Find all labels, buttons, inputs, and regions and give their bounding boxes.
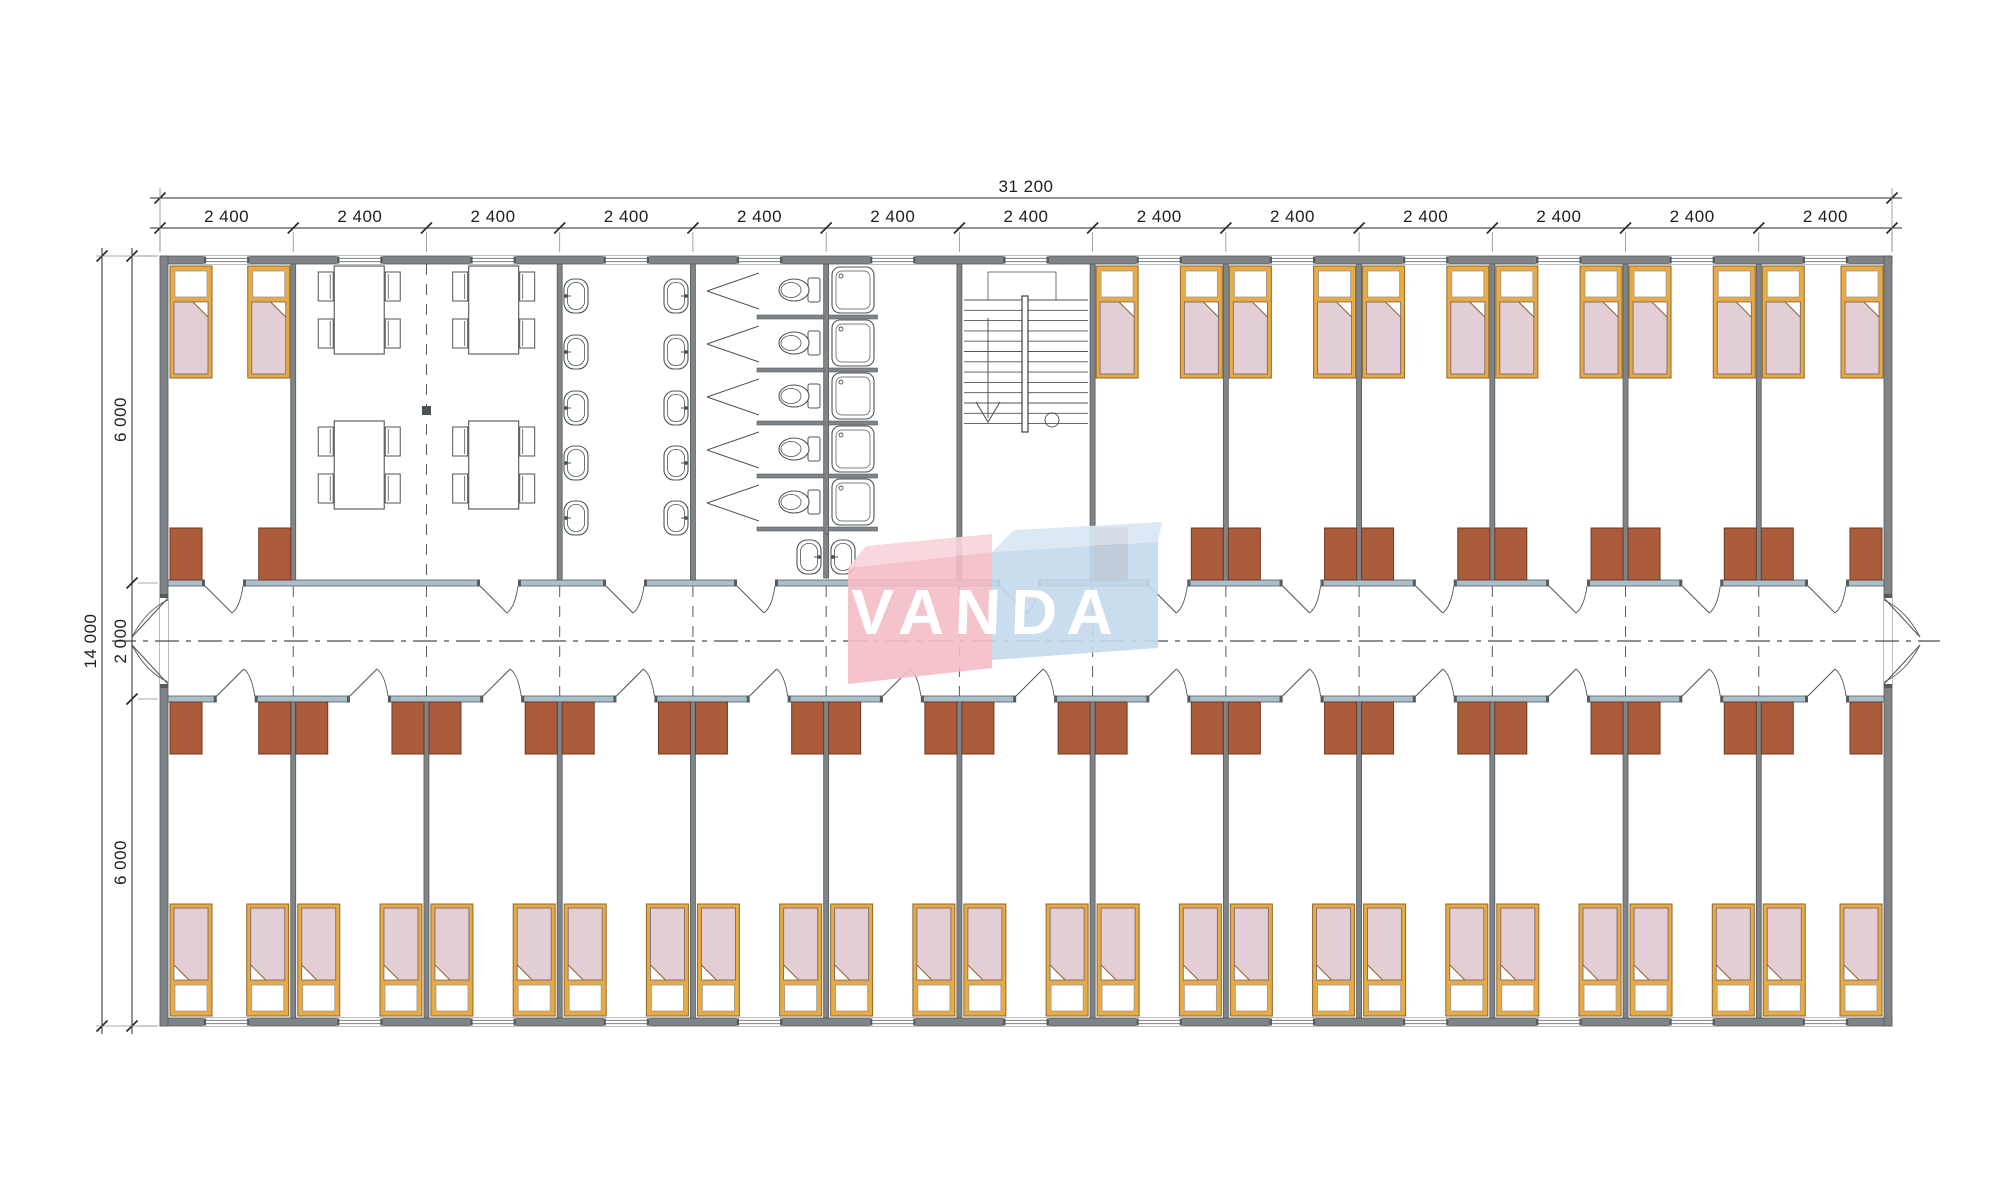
wardrobe [392,702,424,754]
sink-icon [664,391,688,425]
bed [1314,266,1356,378]
wardrobe [925,702,957,754]
wardrobe [1325,528,1357,580]
floor-plan-page: VANDA31 2002 4002 4002 4002 4002 4002 40… [0,0,2000,1200]
wardrobe [1191,528,1223,580]
bed [513,904,555,1016]
shower-cubicle-icon [832,267,874,313]
wardrobe [259,528,291,580]
window-icon [1669,256,1715,264]
window-icon [204,1018,250,1026]
bed [431,904,473,1016]
bed [564,904,606,1016]
dim-bay: 2 400 [737,207,782,226]
sink-icon [564,335,588,369]
bed [298,904,340,1016]
wardrobe [1458,528,1490,580]
bed [1364,904,1406,1016]
bed [1629,266,1671,378]
wardrobe [525,702,557,754]
wardrobe [1495,702,1527,754]
bed [1363,266,1405,378]
wardrobe [429,702,461,754]
bed [1446,904,1488,1016]
wardrobe [695,702,727,754]
dim-left-segment: 2 000 [111,618,130,663]
wardrobe [1628,702,1660,754]
wardrobe [1850,702,1882,754]
bed [831,904,873,1016]
window-icon [737,256,783,264]
wardrobe [962,702,994,754]
wardrobe [1095,702,1127,754]
dim-bay: 2 400 [1536,207,1581,226]
window-icon [603,1018,649,1026]
sink-icon [797,540,821,574]
bed [170,904,212,1016]
bed [248,266,290,378]
shower-cubicle-icon [832,373,874,419]
bed [1840,904,1882,1016]
window-icon [737,1018,783,1026]
bed [1180,266,1222,378]
window-icon [337,1018,383,1026]
dim-bay: 2 400 [471,207,516,226]
wardrobe [1591,528,1623,580]
sink-icon [564,501,588,535]
dim-left-segment: 6 000 [111,840,130,885]
wardrobe [170,528,202,580]
sink-icon [564,391,588,425]
wardrobe [1628,528,1660,580]
wardrobe [1724,528,1756,580]
bed [1096,266,1138,378]
window-icon [1269,256,1315,264]
wardrobe [1228,702,1260,754]
dim-bay: 2 400 [204,207,249,226]
sink-icon [564,279,588,313]
wardrobe [1362,702,1394,754]
wardrobe [1761,702,1793,754]
window-icon [337,256,383,264]
dim-bay: 2 400 [870,207,915,226]
window-icon [603,256,649,264]
window-icon [1536,256,1582,264]
bed [1046,904,1088,1016]
bed [1713,266,1755,378]
wardrobe [1850,528,1882,580]
sink-icon [664,501,688,535]
bed [1313,904,1355,1016]
bed [1630,904,1672,1016]
bed [1229,266,1271,378]
window-icon [1136,256,1182,264]
sink-icon [664,446,688,480]
dim-total-depth: 14 000 [81,614,100,669]
window-icon [1003,1018,1049,1026]
wardrobe [1495,528,1527,580]
shower-cubicle-icon [832,426,874,472]
dim-bay: 2 400 [337,207,382,226]
window-icon [1136,1018,1182,1026]
bed [380,904,422,1016]
wardrobe [1058,702,1090,754]
wardrobe [658,702,690,754]
window-icon [1403,256,1449,264]
bed [964,904,1006,1016]
wardrobe [562,702,594,754]
wardrobe [1362,528,1394,580]
window-icon [1536,1018,1582,1026]
window-icon [1403,1018,1449,1026]
wardrobe [170,702,202,754]
wardrobe [1325,702,1357,754]
bed [1497,904,1539,1016]
dim-bay: 2 400 [1403,207,1448,226]
wardrobe [792,702,824,754]
bed [1496,266,1538,378]
floor-plan-drawing: VANDA31 2002 4002 4002 4002 4002 4002 40… [0,0,2000,1200]
dim-bay: 2 400 [1270,207,1315,226]
shower-cubicle-icon [832,320,874,366]
bed [1762,266,1804,378]
bed [1841,266,1883,378]
dim-left-segment: 6 000 [111,397,130,442]
bed [1097,904,1139,1016]
bed [1447,266,1489,378]
wardrobe [1591,702,1623,754]
dim-bay: 2 400 [1003,207,1048,226]
window-icon [204,256,250,264]
sink-icon [664,335,688,369]
dim-bay: 2 400 [1137,207,1182,226]
window-icon [870,256,916,264]
window-icon [1802,1018,1848,1026]
dim-bay: 2 400 [1803,207,1848,226]
shower-cubicle-icon [832,479,874,525]
brand-wordmark: VANDA [849,576,1124,648]
sink-icon [664,279,688,313]
wardrobe [1724,702,1756,754]
wardrobe [1761,528,1793,580]
sink-icon [564,446,588,480]
wardrobe [259,702,291,754]
dim-bay: 2 400 [1670,207,1715,226]
bed [697,904,739,1016]
bed [1763,904,1805,1016]
bed [170,266,212,378]
wardrobe [296,702,328,754]
bed [1712,904,1754,1016]
bed [913,904,955,1016]
wardrobe [1191,702,1223,754]
window-icon [470,1018,516,1026]
dim-bay: 2 400 [604,207,649,226]
bed [1580,266,1622,378]
window-icon [1003,256,1049,264]
wardrobe [1228,528,1260,580]
window-icon [870,1018,916,1026]
wardrobe [829,702,861,754]
window-icon [1269,1018,1315,1026]
dim-total-width: 31 200 [999,177,1054,196]
bed [780,904,822,1016]
bed [1579,904,1621,1016]
bed [1179,904,1221,1016]
window-icon [1802,256,1848,264]
bed [247,904,289,1016]
bed [646,904,688,1016]
wardrobe [1458,702,1490,754]
window-icon [470,256,516,264]
bed [1230,904,1272,1016]
window-icon [1669,1018,1715,1026]
